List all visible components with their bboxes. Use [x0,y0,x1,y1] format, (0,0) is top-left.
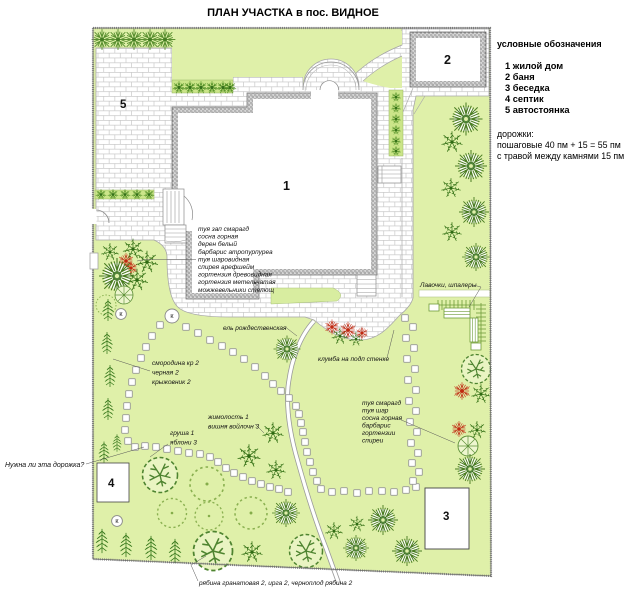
svg-text:гортензия древовидная: гортензия древовидная [198,271,272,279]
svg-text:туя шар: туя шар [362,408,389,415]
svg-text:туя шаровидная: туя шаровидная [198,255,250,263]
svg-text:3: 3 [443,511,449,523]
svg-text:дерен белый: дерен белый [198,240,237,248]
svg-text:2: 2 [444,53,451,67]
svg-text:крыжовник 2: крыжовник 2 [152,379,191,386]
svg-text:яблони 3: яблони 3 [169,439,197,447]
svg-text:условные обозначения: условные обозначения [497,39,602,49]
svg-text:гортензия метельчатая: гортензия метельчатая [198,279,276,286]
svg-text:спиреи: спиреи [362,438,384,445]
svg-text:спирея арефшейм: спирея арефшейм [198,263,255,271]
svg-text:гортензии: гортензии [362,430,396,437]
svg-text:туя смарагд: туя смарагд [362,399,401,407]
svg-text:черная 2: черная 2 [152,370,179,377]
svg-text:пошаговые 40 пм + 15 = 55 пм: пошаговые 40 пм + 15 = 55 пм [497,140,621,150]
svg-text:3 беседка: 3 беседка [505,83,550,93]
svg-text:сосна горная: сосна горная [198,234,239,241]
svg-text:клумба на подп стенке: клумба на подп стенке [318,355,390,363]
svg-text:1: 1 [283,179,290,193]
svg-text:дорожки:: дорожки: [497,129,534,139]
svg-text:барбарис: барбарис [362,422,391,430]
svg-text:5 автостоянка: 5 автостоянка [505,105,570,115]
svg-text:вишня войлочн 3: вишня войлочн 3 [208,423,259,431]
svg-text:1 жилой дом: 1 жилой дом [505,61,563,71]
svg-text:4 септик: 4 септик [505,94,544,104]
svg-text:сосна горная: сосна горная [362,415,403,422]
svg-text:груша 1: груша 1 [170,430,195,437]
svg-text:барбарис атропурпуреа: барбарис атропурпуреа [198,248,273,256]
svg-text:Лавочки, шпалеры: Лавочки, шпалеры [419,282,477,289]
svg-text:Нужна ли эта дорожка?: Нужна ли эта дорожка? [5,461,84,469]
svg-text:жимолость 1: жимолость 1 [207,414,249,421]
svg-text:4: 4 [108,478,115,490]
svg-text:смородина кр 2: смородина кр 2 [152,359,199,367]
svg-text:туя зап смарагд: туя зап смарагд [198,225,249,233]
svg-text:2 баня: 2 баня [505,72,535,82]
svg-text:можжевельники стелющ: можжевельники стелющ [198,287,275,294]
svg-text:ель рождественская: ель рождественская [223,324,287,332]
svg-text:ПЛАН УЧАСТКА в пос. ВИДНОЕ: ПЛАН УЧАСТКА в пос. ВИДНОЕ [207,7,379,19]
svg-text:5: 5 [120,99,127,111]
svg-text:рябина гранатовая 2, ирга 2, ч: рябина гранатовая 2, ирга 2, черноплод р… [198,579,353,587]
svg-text:с травой между камнями 15 пм: с травой между камнями 15 пм [497,151,624,161]
